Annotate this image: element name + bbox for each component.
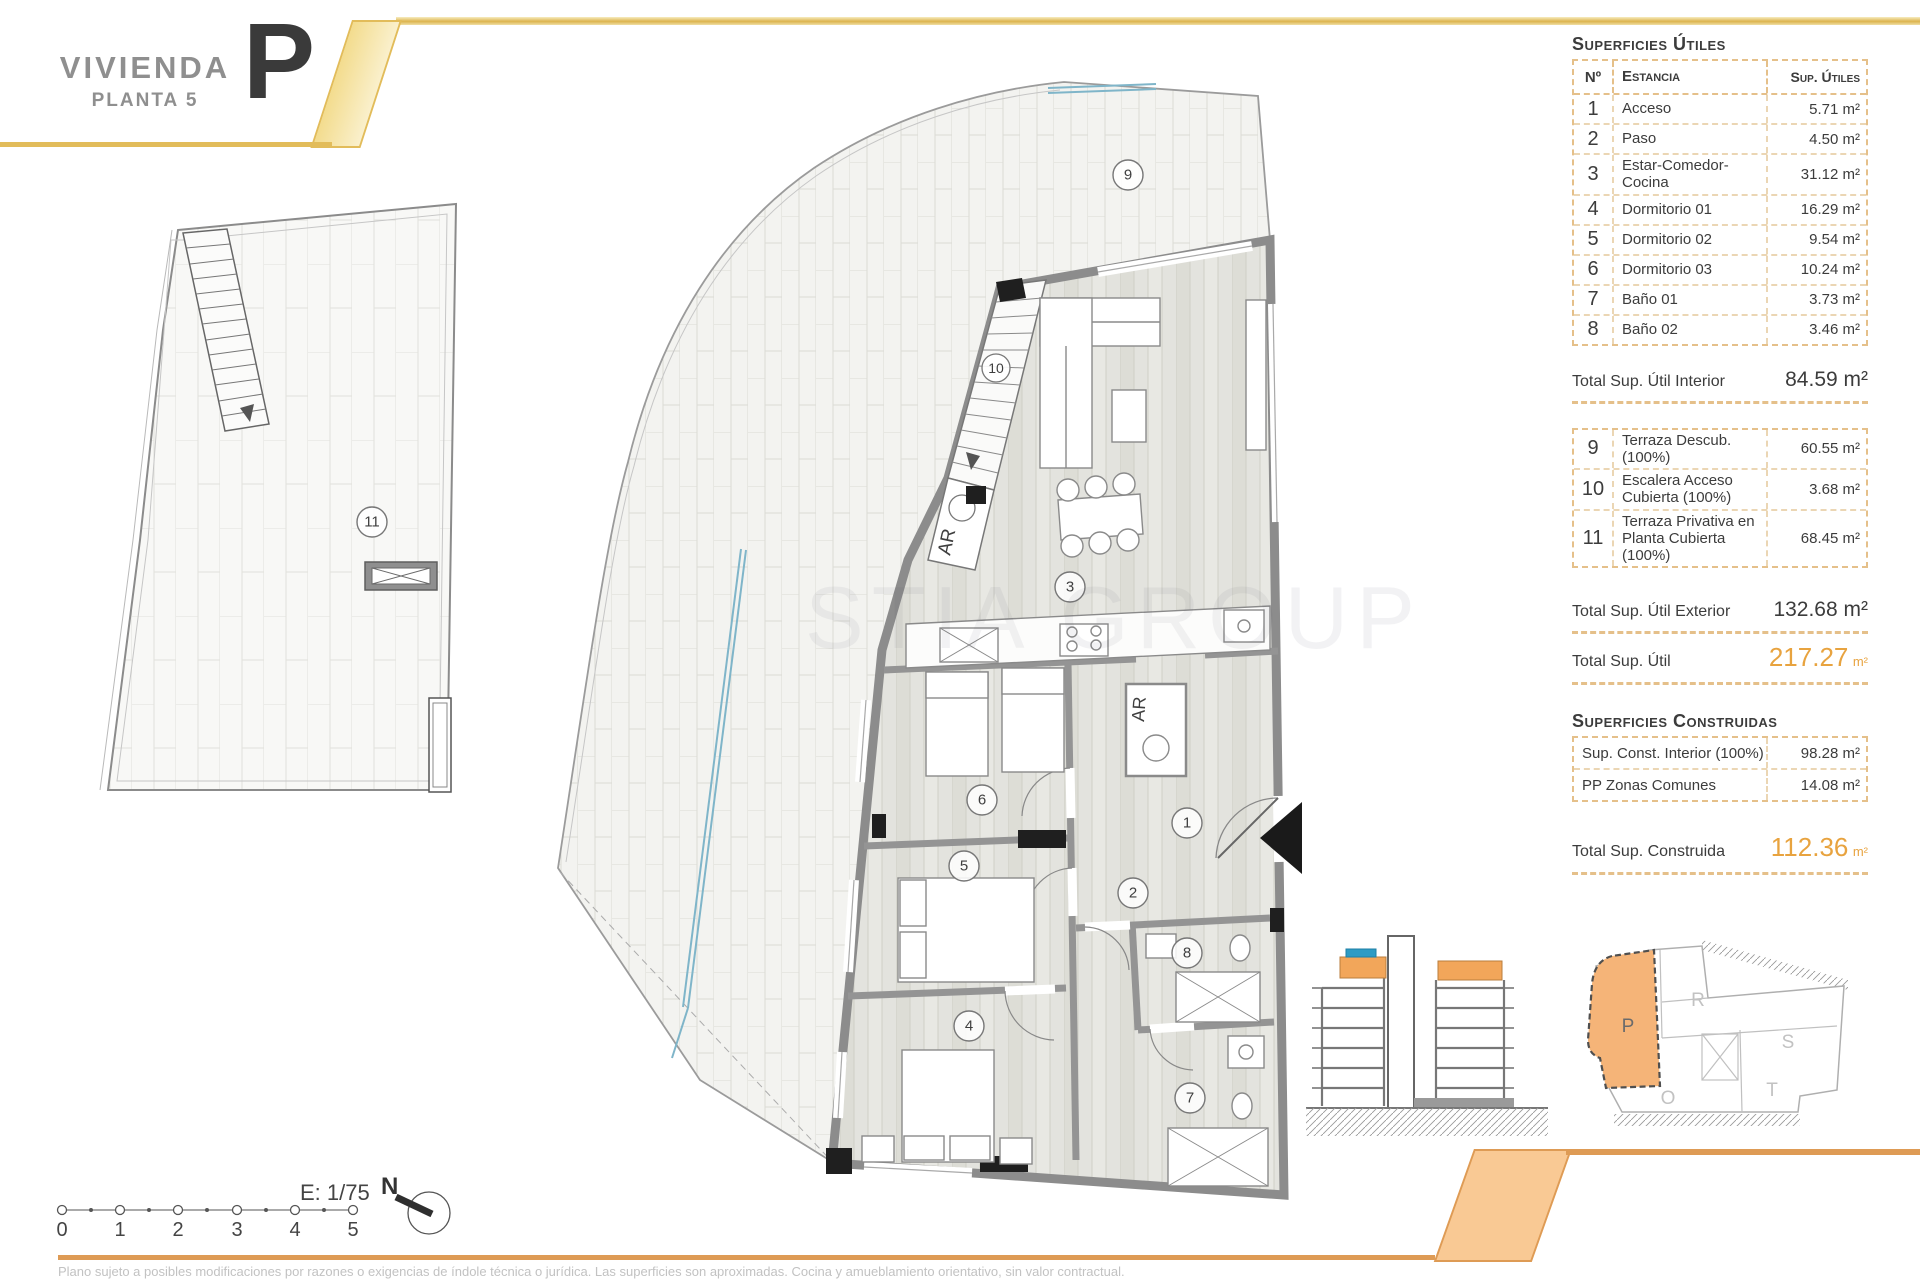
row-number: 2 (1574, 125, 1614, 153)
table-row: 3 Estar-Comedor-Cocina 31.12 m² (1574, 155, 1866, 196)
row-number: 5 (1574, 226, 1614, 254)
key-plan-unit-s: S (1782, 1032, 1795, 1053)
useful-surfaces-heading: Superficies Útiles (1572, 34, 1868, 55)
svg-text:7: 7 (1186, 1090, 1194, 1107)
floor-subtitle: PLANTA 5 (50, 90, 240, 112)
key-plan-unit-p: P (1622, 1016, 1635, 1037)
total-util-unit: m² (1853, 654, 1868, 669)
foundation-slab (1414, 1098, 1514, 1108)
table-row: 4 Dormitorio 01 16.29 m² (1574, 196, 1866, 226)
total-util-label: Total Sup. Útil (1572, 653, 1671, 671)
roof-terrace-plan: 11 (100, 204, 456, 792)
room-label-6: 6 (967, 785, 997, 815)
scale-label: E: 1/75 (300, 1180, 370, 1205)
room-label-8: 8 (1172, 938, 1202, 968)
row-number: 6 (1574, 256, 1614, 284)
table-row: 5 Dormitorio 02 9.54 m² (1574, 226, 1866, 256)
location-key-plan: P R S O T (1588, 940, 1848, 1126)
coffee-table (1112, 390, 1146, 442)
svg-text:11: 11 (364, 514, 380, 531)
compass-needle-icon (396, 1197, 432, 1214)
row-room: Terraza Descub.(100%) (1614, 430, 1766, 469)
svg-text:10: 10 (988, 360, 1004, 376)
total-exterior-row: Total Sup. Útil Exterior 132.68 m² (1572, 592, 1868, 634)
svg-text:5: 5 (960, 858, 968, 875)
row-number: 3 (1574, 155, 1614, 194)
row-number: 7 (1574, 286, 1614, 314)
total-interior-row: Total Sup. Útil Interior 84.59 m² (1572, 362, 1868, 404)
section-elevation-diagram (1306, 936, 1548, 1136)
row-value: 5.71 m² (1766, 95, 1866, 123)
built-surfaces-table: Sup. Const. Interior (100%) 98.28 m² PP … (1572, 736, 1868, 802)
table-row: 11 Terraza Privativa en Planta Cubierta … (1574, 511, 1866, 567)
svg-text:6: 6 (978, 792, 986, 809)
page-title: VIVIENDA (50, 50, 240, 86)
legal-disclaimer: Plano sujeto a posibles modificaciones p… (58, 1264, 1578, 1279)
highlighted-floor-left (1340, 957, 1386, 978)
row-number: 8 (1574, 316, 1614, 344)
useful-surfaces-table: Nº Estancia Sup. Útiles 1 Acceso 5.71 m²… (1572, 59, 1868, 346)
room-label-11: 11 (357, 507, 387, 537)
row-room: Dormitorio 02 (1614, 229, 1766, 250)
svg-text:2: 2 (1129, 885, 1137, 902)
row-value: 4.50 m² (1766, 125, 1866, 153)
row-value: 98.28 m² (1766, 738, 1866, 768)
total-exterior-value: 132.68 m² (1773, 598, 1868, 622)
room-label-4: 4 (954, 1011, 984, 1041)
svg-text:8: 8 (1183, 945, 1191, 962)
scale-tick: 3 (231, 1219, 242, 1241)
svg-text:1: 1 (1183, 815, 1191, 832)
exterior-surfaces-table: 9 Terraza Descub.(100%) 60.55 m² 10 Esca… (1572, 428, 1868, 569)
main-floor-plan: 9 (558, 82, 1423, 1195)
row-room: Terraza Privativa en Planta Cubierta (10… (1614, 511, 1766, 567)
top-accent-band (396, 17, 1920, 25)
table-row: PP Zonas Comunes 14.08 m² (1574, 770, 1866, 800)
row-value: 68.45 m² (1766, 511, 1866, 567)
row-value: 10.24 m² (1766, 256, 1866, 284)
row-value: 3.73 m² (1766, 286, 1866, 314)
room-label-5: 5 (949, 851, 979, 881)
table-row: 1 Acceso 5.71 m² (1574, 95, 1866, 125)
elevator-core (1388, 936, 1414, 1108)
key-plan-unit-r: R (1691, 990, 1705, 1011)
row-number: 4 (1574, 196, 1614, 224)
scale-tick: 2 (172, 1219, 183, 1241)
unit-letter: P (243, 2, 315, 121)
total-interior-value: 84.59 m² (1785, 368, 1868, 392)
room-label-2: 2 (1118, 878, 1148, 908)
title-underline (0, 142, 332, 147)
room-label-9: 9 (1113, 160, 1143, 190)
table-row: 10 Escalera Acceso Cubierta (100%) 3.68 … (1574, 470, 1866, 511)
row-room: Dormitorio 03 (1614, 259, 1766, 280)
svg-text:9: 9 (1124, 167, 1132, 184)
bottom-accent-line-right (1566, 1149, 1920, 1155)
row-value: 9.54 m² (1766, 226, 1866, 254)
row-number: 10 (1574, 470, 1614, 509)
total-built-row: Total Sup. Construida 112.36 m² (1572, 826, 1868, 875)
row-label: PP Zonas Comunes (1574, 777, 1766, 794)
col-header-room: Estancia (1614, 66, 1766, 87)
col-header-sup: Sup. Útiles (1766, 61, 1866, 93)
closet-ar-hall-label: AR (1128, 696, 1150, 722)
highlighted-floor-right (1438, 961, 1502, 980)
total-util-value: 217.27 (1769, 642, 1849, 672)
row-room: Estar-Comedor-Cocina (1614, 155, 1766, 194)
toilet-icon (1232, 1093, 1252, 1119)
row-room: Baño 01 (1614, 289, 1766, 310)
total-util-row: Total Sup. Útil 217.27 m² (1572, 636, 1868, 685)
total-built-unit: m² (1853, 844, 1868, 859)
scale-tick: 5 (347, 1219, 358, 1241)
room-label-1: 1 (1172, 808, 1202, 838)
table-row: 9 Terraza Descub.(100%) 60.55 m² (1574, 430, 1866, 471)
pool-icon (1346, 949, 1376, 957)
row-value: 14.08 m² (1766, 770, 1866, 800)
toilet-icon (1230, 935, 1250, 961)
built-surfaces-heading: Superficies Construidas (1572, 711, 1868, 732)
row-number: 11 (1574, 511, 1614, 567)
table-row: 7 Baño 01 3.73 m² (1574, 286, 1866, 316)
north-label: N (381, 1173, 398, 1200)
north-arrow: N (381, 1173, 450, 1234)
total-interior-label: Total Sup. Útil Interior (1572, 373, 1725, 391)
row-room: Baño 02 (1614, 319, 1766, 340)
skylight (365, 562, 437, 590)
row-value: 3.46 m² (1766, 316, 1866, 344)
row-value: 31.12 m² (1766, 155, 1866, 194)
col-header-no: Nº (1574, 61, 1614, 93)
room-label-10: 10 (982, 354, 1010, 382)
row-room: Acceso (1614, 98, 1766, 119)
planter (429, 698, 451, 792)
scale-tick: 1 (114, 1219, 125, 1241)
key-plan-unit-t: T (1766, 1080, 1778, 1101)
row-room: Dormitorio 01 (1614, 199, 1766, 220)
total-built-value: 112.36 (1771, 832, 1849, 862)
row-room: Paso (1614, 128, 1766, 149)
dining-table-and-chairs (1057, 473, 1143, 557)
row-value: 3.68 m² (1766, 470, 1866, 509)
table-row: 2 Paso 4.50 m² (1574, 125, 1866, 155)
watermark: STIA GROUP (805, 568, 1423, 667)
key-plan-unit-o: O (1661, 1088, 1676, 1109)
table-row: Sup. Const. Interior (100%) 98.28 m² (1574, 738, 1866, 770)
row-label: Sup. Const. Interior (100%) (1574, 745, 1766, 762)
svg-text:4: 4 (965, 1018, 973, 1035)
washing-machine-icon (1143, 735, 1169, 761)
scale-tick: 4 (289, 1219, 300, 1241)
room-label-7: 7 (1175, 1083, 1205, 1113)
surfaces-panel: Superficies Útiles Nº Estancia Sup. Útil… (1572, 34, 1868, 875)
table-header-row: Nº Estancia Sup. Útiles (1574, 61, 1866, 95)
double-bed-small (898, 878, 1034, 982)
bottom-accent-line-left (58, 1255, 1435, 1260)
row-room: Escalera Acceso Cubierta (100%) (1614, 470, 1766, 509)
tv-unit (1246, 300, 1266, 450)
floor-plan-sheet: 11 9 (0, 0, 1920, 1280)
total-exterior-label: Total Sup. Útil Exterior (1572, 603, 1730, 621)
row-value: 60.55 m² (1766, 430, 1866, 469)
ground-hatch (1306, 1108, 1548, 1136)
row-number: 1 (1574, 95, 1614, 123)
row-value: 16.29 m² (1766, 196, 1866, 224)
scale-bar: E: 1/75 0 1 2 3 4 5 (56, 1180, 369, 1241)
total-built-label: Total Sup. Construida (1572, 843, 1725, 861)
table-row: 8 Baño 02 3.46 m² (1574, 316, 1866, 344)
scale-tick: 0 (56, 1219, 67, 1241)
table-row: 6 Dormitorio 03 10.24 m² (1574, 256, 1866, 286)
row-number: 9 (1574, 430, 1614, 469)
